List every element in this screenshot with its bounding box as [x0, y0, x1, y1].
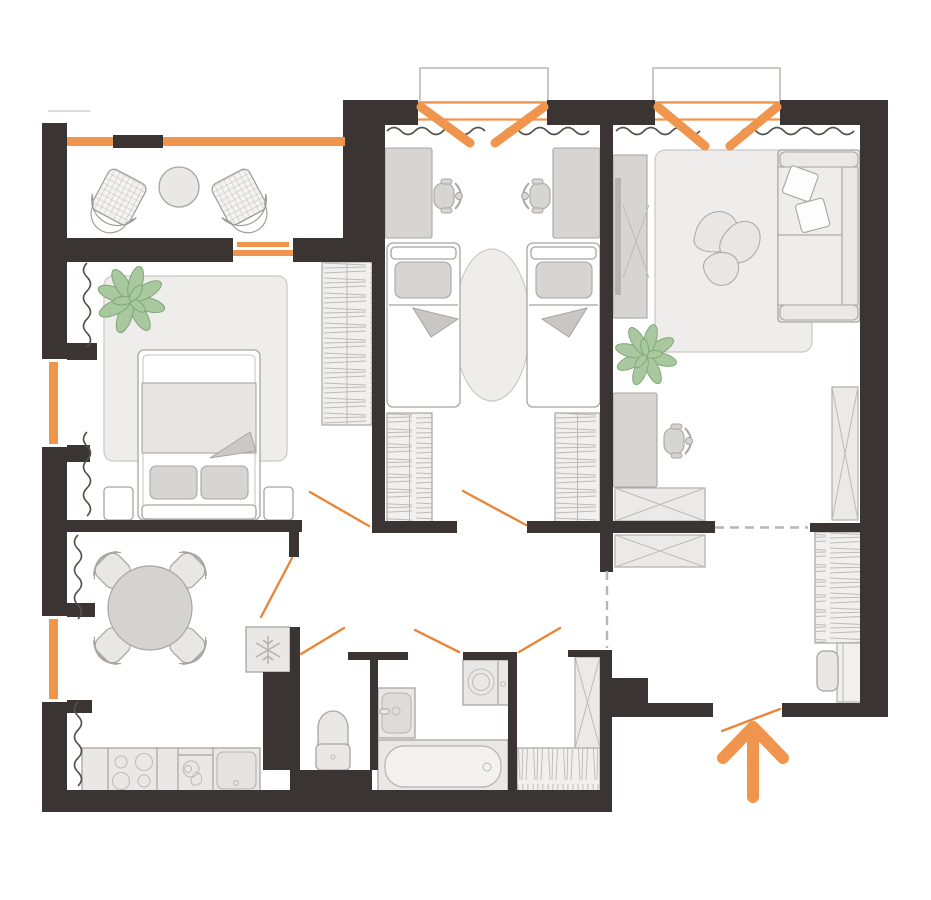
- sofa: [778, 150, 860, 322]
- wall-segment: [42, 123, 67, 242]
- wall-pier: [42, 603, 95, 617]
- floor-plan-canvas: [0, 0, 931, 900]
- balcony-door-leaf: [421, 107, 470, 143]
- double-bed: [138, 350, 260, 520]
- fridge: [246, 627, 290, 672]
- wall-segment: [348, 652, 408, 660]
- single-bed: [527, 243, 600, 407]
- nightstand: [264, 487, 293, 520]
- tall-wardrobe: [832, 387, 858, 520]
- wall-segment: [42, 790, 612, 812]
- balcony-door-leaf: [658, 107, 705, 146]
- round-dining-table: [108, 566, 192, 650]
- curtain-squiggle: [84, 432, 91, 516]
- balcony-slab: [420, 68, 548, 102]
- kitchen-counter: [82, 748, 260, 793]
- single-bed: [387, 243, 460, 407]
- pillow: [536, 262, 592, 298]
- room-hallway: [517, 532, 862, 793]
- tv: [615, 178, 621, 295]
- cabinet: [615, 535, 705, 567]
- glazing-pier: [113, 135, 163, 148]
- wall-segment: [372, 262, 385, 533]
- desk-chair: [434, 179, 463, 213]
- wall-segment: [568, 650, 612, 657]
- pillow: [150, 466, 197, 499]
- tall-wardrobe: [575, 657, 600, 748]
- balcony-door-leaf: [495, 107, 544, 143]
- wall-segment: [42, 520, 302, 532]
- wall-segment: [527, 521, 715, 533]
- wall-segment: [782, 703, 888, 717]
- wall-pier: [42, 445, 90, 462]
- wardrobe: [555, 413, 600, 522]
- room-living: [603, 150, 860, 567]
- room-wc: [316, 711, 350, 770]
- wall-segment: [600, 657, 612, 800]
- balcony-glazing: [67, 135, 345, 148]
- pillow: [395, 262, 451, 298]
- wall-segment: [343, 125, 385, 262]
- desk: [385, 148, 432, 238]
- basin-sink: [217, 752, 256, 789]
- toilet: [316, 711, 350, 770]
- wall-segment: [508, 652, 517, 793]
- bathtub: [378, 740, 508, 793]
- wicker-chair: [206, 165, 279, 242]
- balcony-slab: [653, 68, 780, 102]
- desk-chair: [664, 424, 693, 458]
- curtain-squiggle: [84, 263, 91, 347]
- wall-stub: [289, 532, 299, 557]
- wall-segment: [343, 100, 418, 125]
- bedroom-door-swing: [310, 492, 369, 526]
- balcony-door-leaf: [730, 107, 777, 146]
- curtain-squiggle: [387, 128, 485, 135]
- tv-console: [613, 155, 649, 318]
- desk: [553, 148, 600, 238]
- room-balcony: [79, 165, 279, 242]
- wall-segment: [290, 770, 372, 793]
- wall-segment: [600, 125, 613, 572]
- bathroom-door-swing: [415, 630, 459, 652]
- headboard: [142, 505, 256, 519]
- washing-machine: [463, 660, 510, 705]
- pillow: [201, 466, 248, 499]
- armrest: [780, 152, 858, 167]
- wall-segment: [547, 100, 655, 125]
- wardrobe: [387, 413, 432, 522]
- bathroom-door-swing: [519, 628, 560, 652]
- washbasin: [378, 688, 415, 738]
- wall-segment: [810, 523, 862, 532]
- desk: [613, 393, 657, 487]
- wall-segment: [860, 100, 888, 717]
- curtain-squiggle: [742, 128, 854, 135]
- floor-plan: [0, 0, 931, 900]
- room-bathroom: [378, 660, 510, 793]
- kitchen-window: [42, 616, 67, 702]
- room-bedroom: [88, 257, 372, 520]
- coat-wardrobe: [815, 532, 862, 643]
- armrest: [780, 305, 858, 320]
- kids-door-swing: [463, 491, 526, 525]
- desk-chair: [522, 179, 551, 213]
- wc-door-swing: [301, 628, 344, 654]
- wicker-chair: [79, 165, 152, 242]
- wall-segment: [263, 672, 300, 770]
- oval-rug: [454, 249, 530, 401]
- bench: [817, 643, 862, 702]
- wall-segment: [608, 703, 713, 717]
- wall-segment: [42, 238, 233, 262]
- wall-segment: [42, 711, 67, 792]
- kitchen-door-swing: [261, 558, 292, 617]
- room-kitchen: [82, 545, 290, 793]
- room-kids: [385, 148, 600, 522]
- wall-segment: [370, 660, 378, 770]
- nightstand: [104, 487, 133, 520]
- wardrobe: [322, 262, 372, 425]
- seat-cushion: [778, 235, 842, 305]
- coffee-table: [159, 167, 199, 207]
- wall-segment: [612, 678, 648, 703]
- balcony-window-steps: [233, 238, 293, 262]
- backrest: [842, 167, 858, 305]
- entrance-arrow: [723, 727, 783, 797]
- cabinet: [615, 488, 705, 521]
- bedroom-window: [42, 359, 67, 447]
- wall-segment: [372, 521, 457, 533]
- wall-segment: [42, 460, 67, 609]
- closet: [517, 748, 600, 793]
- curtain-squiggle: [75, 702, 82, 786]
